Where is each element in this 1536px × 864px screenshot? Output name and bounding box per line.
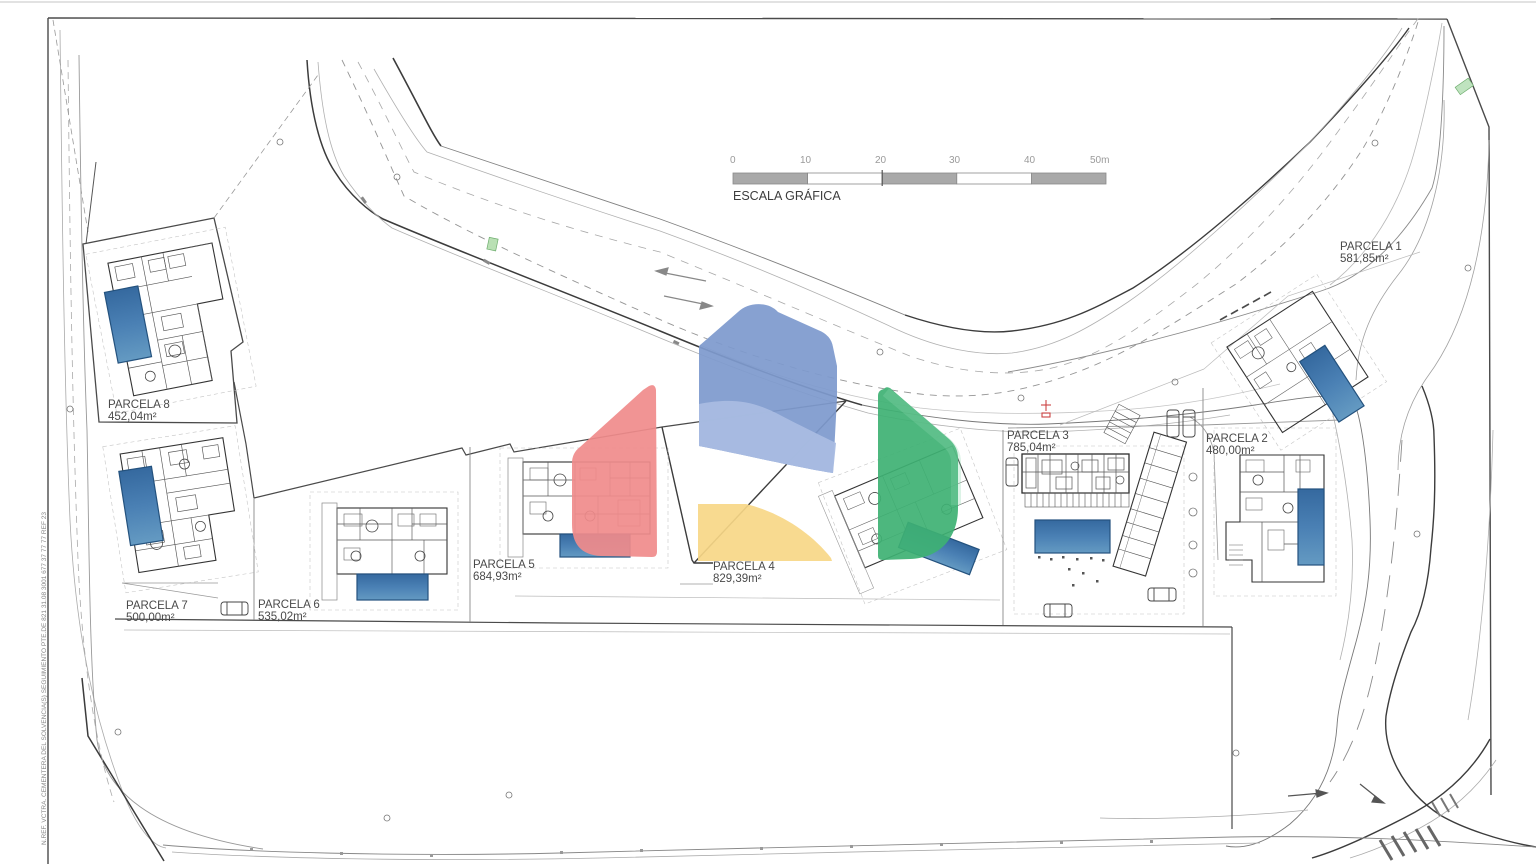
svg-text:PARCELA 6: PARCELA 6 (258, 599, 320, 611)
svg-text:10: 10 (800, 155, 812, 166)
svg-text:452,04m²: 452,04m² (108, 411, 157, 423)
svg-text:535,02m²: 535,02m² (258, 611, 307, 623)
svg-text:PARCELA 5: PARCELA 5 (473, 559, 535, 571)
svg-text:829,39m²: 829,39m² (713, 573, 762, 585)
svg-text:785,04m²: 785,04m² (1007, 442, 1056, 454)
svg-text:PARCELA 7: PARCELA 7 (126, 600, 188, 612)
svg-text:PARCELA 3: PARCELA 3 (1007, 430, 1069, 442)
svg-text:30: 30 (949, 155, 961, 166)
svg-text:480,00m²: 480,00m² (1206, 445, 1255, 457)
svg-text:20: 20 (875, 155, 887, 166)
svg-text:PARCELA 1: PARCELA 1 (1340, 241, 1402, 253)
svg-text:PARCELA 4: PARCELA 4 (713, 561, 775, 573)
svg-text:581,85m²: 581,85m² (1340, 253, 1389, 265)
svg-text:ESCALA GRÁFICA: ESCALA GRÁFICA (733, 188, 841, 203)
svg-text:50m: 50m (1090, 155, 1109, 166)
svg-text:PARCELA 2: PARCELA 2 (1206, 433, 1268, 445)
svg-text:40: 40 (1024, 155, 1036, 166)
svg-text:500,00m²: 500,00m² (126, 612, 175, 624)
svg-text:N.REF. VCTRA. CEMENTERA DEL SO: N.REF. VCTRA. CEMENTERA DEL SOLVENCIA(S)… (41, 512, 48, 845)
svg-text:0: 0 (730, 155, 736, 166)
svg-text:684,93m²: 684,93m² (473, 571, 522, 583)
svg-text:PARCELA 8: PARCELA 8 (108, 399, 170, 411)
